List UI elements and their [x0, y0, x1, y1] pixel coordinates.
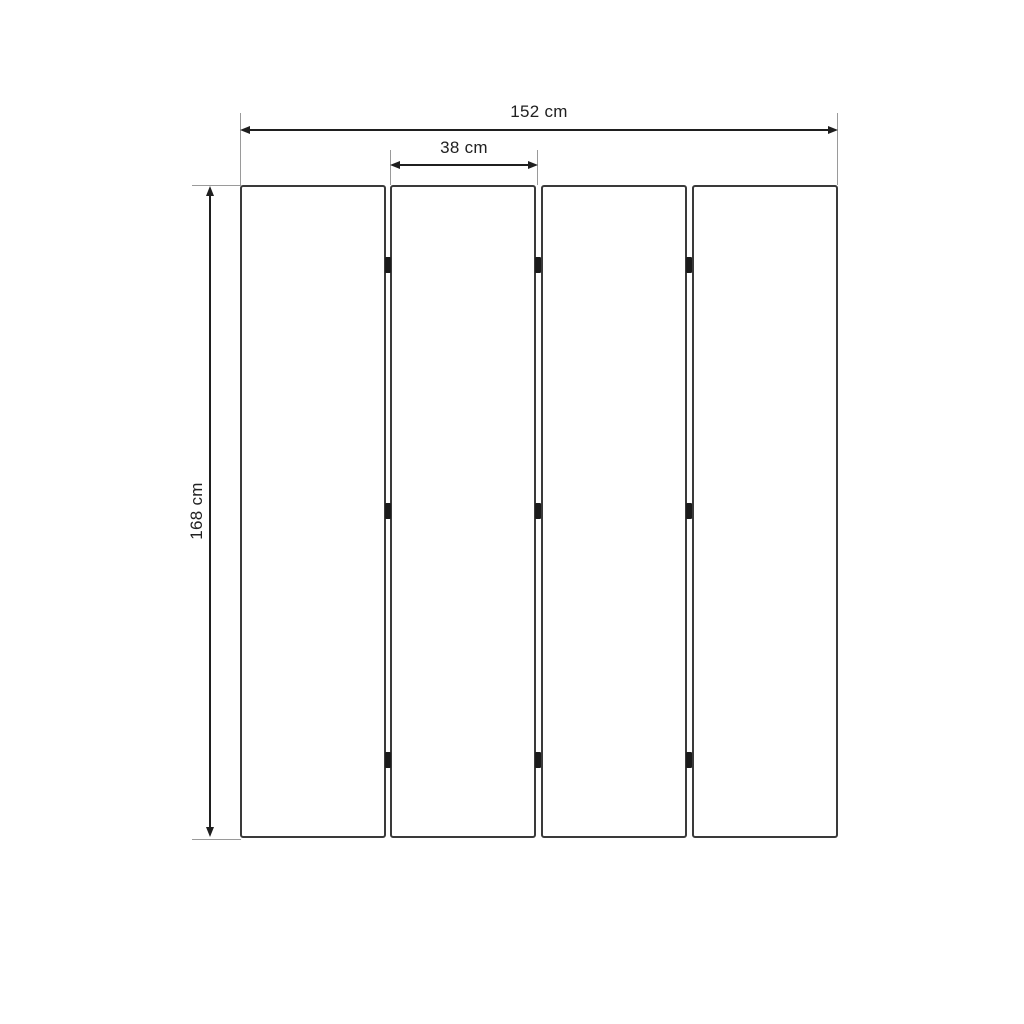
hinge: [535, 752, 541, 768]
dimension-line: [209, 194, 211, 829]
extension-line: [240, 113, 241, 185]
dimension-line: [397, 164, 530, 166]
hinge: [686, 503, 692, 519]
hinge: [385, 752, 391, 768]
panel-1: [240, 185, 386, 838]
arrow-up-icon: [206, 186, 214, 196]
total-width-label: 152 cm: [459, 103, 619, 121]
hinge: [535, 257, 541, 273]
extension-line: [837, 113, 838, 185]
arrow-right-icon: [528, 161, 538, 169]
arrow-right-icon: [828, 126, 838, 134]
extension-line: [192, 839, 241, 840]
hinge: [686, 752, 692, 768]
hinge: [385, 257, 391, 273]
hinge: [686, 257, 692, 273]
dimension-line: [248, 129, 830, 131]
dimension-diagram: 152 cm 38 cm 168 cm: [0, 0, 1024, 1024]
panel-3: [541, 185, 687, 838]
extension-line: [192, 185, 241, 186]
height-label: 168 cm: [188, 471, 206, 551]
arrow-left-icon: [240, 126, 250, 134]
panel-2: [390, 185, 536, 838]
arrow-down-icon: [206, 827, 214, 837]
panel-width-label: 38 cm: [404, 139, 524, 157]
panel-4: [692, 185, 838, 838]
arrow-left-icon: [390, 161, 400, 169]
hinge: [535, 503, 541, 519]
hinge: [385, 503, 391, 519]
